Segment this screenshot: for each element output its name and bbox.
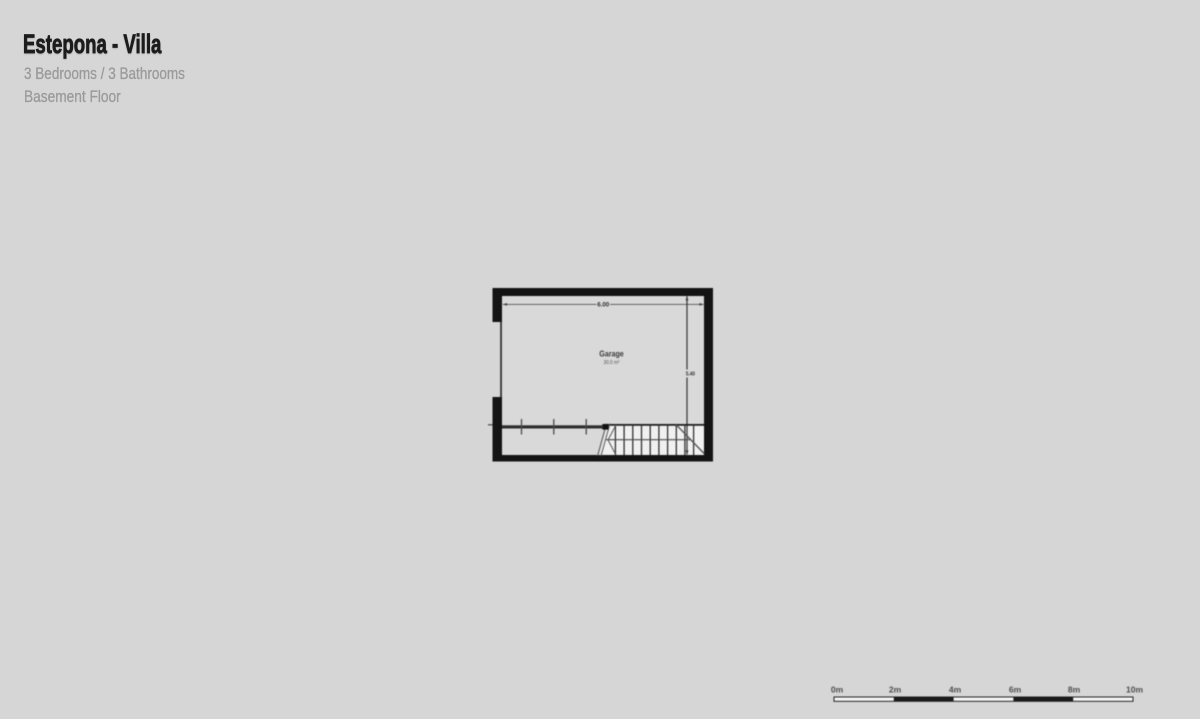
svg-text:30.0 m²: 30.0 m² [604, 360, 620, 366]
svg-text:6.00: 6.00 [597, 302, 609, 309]
svg-text:10m: 10m [1126, 685, 1143, 695]
svg-text:5.40: 5.40 [686, 372, 695, 378]
svg-text:Garage: Garage [599, 349, 624, 358]
svg-text:6m: 6m [1009, 685, 1022, 695]
svg-text:8m: 8m [1068, 685, 1081, 695]
svg-text:0m: 0m [831, 685, 844, 695]
svg-text:2m: 2m [889, 685, 902, 695]
svg-text:4m: 4m [949, 685, 962, 695]
